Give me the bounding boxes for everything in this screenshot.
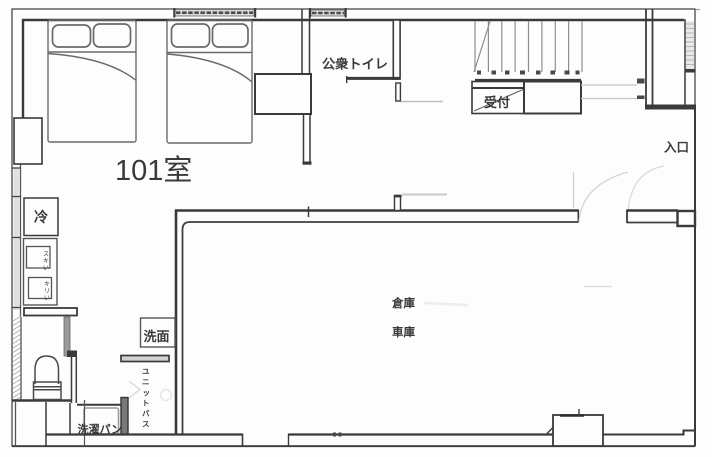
svg-text:バ: バ xyxy=(142,409,150,418)
svg-text:い: い xyxy=(44,295,50,302)
svg-text:い: い xyxy=(43,265,49,272)
svg-text:101室: 101室 xyxy=(115,154,192,187)
svg-text:ト: ト xyxy=(142,399,150,408)
svg-text:ユ: ユ xyxy=(142,367,150,376)
svg-text:リ: リ xyxy=(44,289,50,295)
svg-text:キ: キ xyxy=(44,282,50,288)
svg-text:公衆トイレ: 公衆トイレ xyxy=(322,56,388,72)
svg-text:ス: ス xyxy=(142,420,150,429)
svg-text:冷: 冷 xyxy=(34,209,48,225)
svg-text:洗面: 洗面 xyxy=(144,329,170,344)
svg-text:車庫: 車庫 xyxy=(392,325,415,339)
svg-text:キ: キ xyxy=(43,259,49,265)
svg-text:ニ: ニ xyxy=(142,378,150,387)
svg-text:ッ: ッ xyxy=(143,388,151,397)
svg-text:入口: 入口 xyxy=(664,141,689,155)
svg-text:倉庫: 倉庫 xyxy=(391,296,415,310)
svg-text:受付: 受付 xyxy=(484,95,510,110)
svg-text:ス: ス xyxy=(43,251,49,258)
